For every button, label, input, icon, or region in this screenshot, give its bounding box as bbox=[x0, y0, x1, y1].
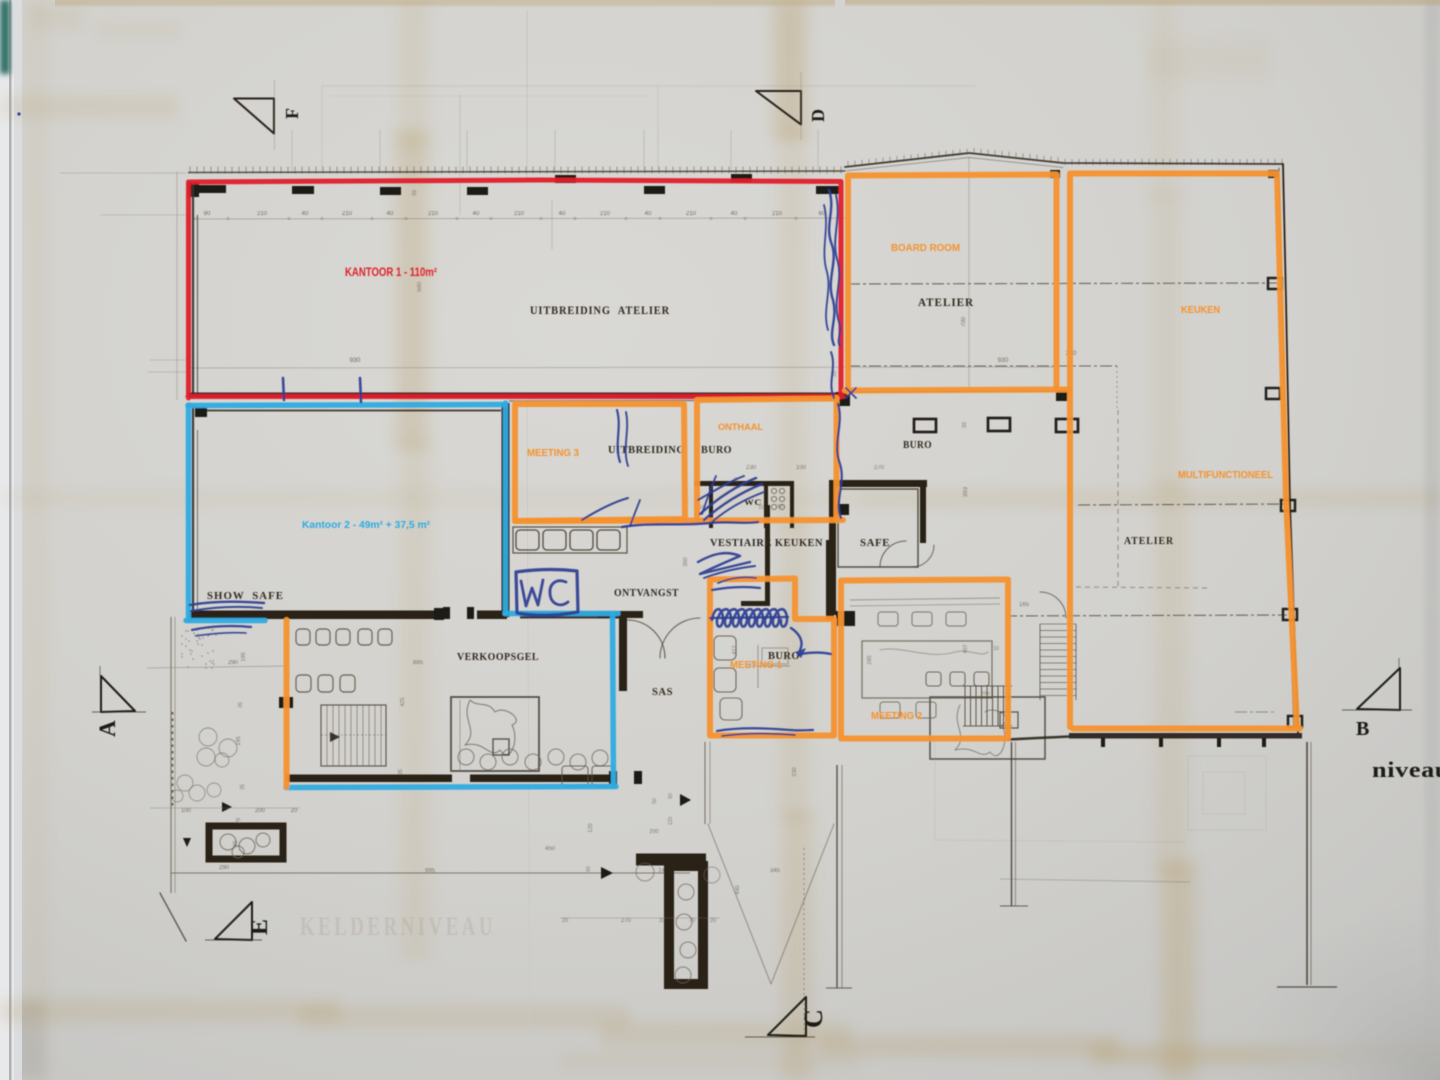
svg-text:270: 270 bbox=[874, 465, 885, 471]
svg-text:UITBREIDING: UITBREIDING bbox=[608, 445, 685, 456]
svg-text:VESTIAIRE KEUKEN: VESTIAIRE KEUKEN bbox=[710, 538, 823, 549]
svg-text:KEUKEN: KEUKEN bbox=[1181, 305, 1220, 316]
svg-text:210: 210 bbox=[686, 211, 697, 217]
svg-text:407: 407 bbox=[963, 644, 969, 653]
svg-text:40: 40 bbox=[731, 211, 738, 217]
svg-text:ONTVANGST: ONTVANGST bbox=[614, 588, 679, 599]
svg-text:40: 40 bbox=[473, 211, 480, 217]
svg-text:MEETING 3: MEETING 3 bbox=[527, 448, 579, 459]
svg-text:SAS: SAS bbox=[652, 687, 673, 698]
svg-text:50: 50 bbox=[777, 504, 783, 510]
svg-text:100: 100 bbox=[796, 465, 807, 471]
svg-text:210: 210 bbox=[600, 211, 611, 217]
svg-text:ONTHAAL: ONTHAAL bbox=[718, 422, 763, 433]
svg-text:165: 165 bbox=[1019, 602, 1030, 608]
svg-text:200: 200 bbox=[649, 829, 658, 835]
svg-text:195: 195 bbox=[241, 652, 247, 661]
svg-text:BOARD ROOM: BOARD ROOM bbox=[891, 243, 960, 254]
svg-text:D: D bbox=[808, 109, 828, 122]
svg-text:35: 35 bbox=[398, 769, 404, 775]
svg-text:450: 450 bbox=[545, 846, 556, 852]
svg-text:40: 40 bbox=[645, 211, 652, 217]
svg-text:nw: nw bbox=[982, 691, 990, 697]
svg-text:360: 360 bbox=[683, 557, 689, 566]
svg-text:KANTOOR 1 - 110m²: KANTOOR 1 - 110m² bbox=[345, 267, 437, 279]
svg-text:KELDERNIVEAU: KELDERNIVEAU bbox=[300, 912, 496, 941]
svg-text:40: 40 bbox=[559, 211, 566, 217]
svg-text:35: 35 bbox=[238, 702, 244, 708]
svg-text:210: 210 bbox=[514, 211, 525, 217]
svg-text:MEETING 1: MEETING 1 bbox=[730, 660, 782, 671]
svg-text:SAFE: SAFE bbox=[860, 538, 890, 549]
svg-text:C: C bbox=[799, 1009, 828, 1028]
svg-text:BURO: BURO bbox=[701, 445, 732, 456]
svg-text:290: 290 bbox=[219, 865, 230, 871]
svg-text:40: 40 bbox=[387, 211, 394, 217]
svg-text:345: 345 bbox=[770, 868, 781, 874]
svg-text:MULTIFUNCTIONEEL: MULTIFUNCTIONEEL bbox=[1178, 470, 1273, 481]
svg-text:995: 995 bbox=[425, 868, 436, 874]
svg-text:ATELIER: ATELIER bbox=[918, 295, 974, 309]
svg-text:70: 70 bbox=[236, 818, 242, 824]
svg-text:417: 417 bbox=[732, 645, 738, 654]
svg-text:90: 90 bbox=[204, 211, 211, 217]
svg-text:120: 120 bbox=[588, 823, 594, 832]
svg-text:20: 20 bbox=[562, 918, 568, 924]
svg-text:80: 80 bbox=[586, 866, 592, 872]
svg-text:100: 100 bbox=[181, 808, 192, 814]
svg-text:590: 590 bbox=[417, 281, 423, 292]
svg-text:700: 700 bbox=[961, 316, 967, 327]
svg-text:MEETING 2: MEETING 2 bbox=[871, 711, 922, 722]
svg-text:210: 210 bbox=[772, 211, 783, 217]
svg-text:35: 35 bbox=[412, 190, 418, 196]
svg-text:35: 35 bbox=[240, 784, 246, 790]
svg-text:440: 440 bbox=[735, 885, 741, 894]
svg-text:230: 230 bbox=[746, 465, 757, 471]
svg-text:F: F bbox=[282, 108, 302, 119]
svg-text:20: 20 bbox=[291, 808, 298, 814]
svg-text:930: 930 bbox=[998, 357, 1009, 364]
svg-text:195: 195 bbox=[236, 736, 242, 745]
svg-text:200: 200 bbox=[255, 808, 266, 814]
svg-text:40: 40 bbox=[302, 211, 309, 217]
svg-text:B: B bbox=[1356, 718, 1369, 740]
svg-text:Kantoor 2 - 49m² + 37,5 m²: Kantoor 2 - 49m² + 37,5 m² bbox=[302, 519, 430, 531]
svg-text:885: 885 bbox=[413, 660, 424, 666]
svg-text:290: 290 bbox=[228, 660, 239, 666]
svg-text:210: 210 bbox=[428, 211, 439, 217]
svg-text:285: 285 bbox=[867, 655, 873, 664]
svg-text:425: 425 bbox=[400, 697, 406, 706]
svg-text:E: E bbox=[247, 919, 273, 935]
svg-text:393: 393 bbox=[963, 486, 969, 497]
svg-text:VERKOOPSGEL: VERKOOPSGEL bbox=[457, 652, 539, 663]
svg-text:230: 230 bbox=[792, 767, 798, 776]
svg-text:UITBREIDING ATELIER: UITBREIDING ATELIER bbox=[530, 303, 670, 317]
svg-text:90: 90 bbox=[233, 841, 239, 847]
svg-text:A: A bbox=[95, 720, 120, 737]
svg-text:20: 20 bbox=[710, 918, 716, 924]
svg-text:SHOW SAFE: SHOW SAFE bbox=[207, 591, 284, 602]
svg-text:35: 35 bbox=[962, 422, 968, 428]
svg-text:210: 210 bbox=[342, 211, 353, 217]
svg-text:50: 50 bbox=[652, 798, 658, 804]
svg-text:270: 270 bbox=[621, 918, 632, 924]
svg-text:niveau: niveau bbox=[1372, 757, 1440, 782]
svg-text:210: 210 bbox=[257, 211, 268, 217]
svg-text:930: 930 bbox=[350, 357, 361, 364]
svg-text:ATELIER: ATELIER bbox=[1124, 536, 1174, 547]
svg-text:10: 10 bbox=[993, 646, 999, 652]
svg-text:80: 80 bbox=[668, 793, 674, 799]
svg-text:BURO: BURO bbox=[903, 440, 932, 451]
svg-text:120: 120 bbox=[668, 817, 674, 826]
